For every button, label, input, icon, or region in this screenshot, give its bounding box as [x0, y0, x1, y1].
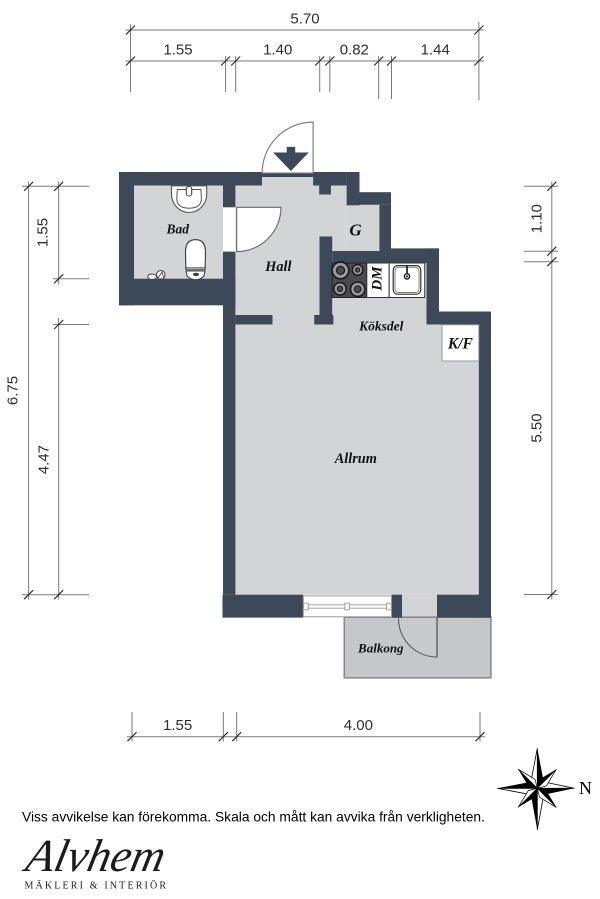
svg-text:5.70: 5.70 [290, 11, 319, 28]
svg-text:6.75: 6.75 [5, 376, 22, 405]
svg-text:Bad: Bad [166, 222, 190, 237]
svg-text:Alvhem: Alvhem [19, 831, 171, 881]
svg-text:4.47: 4.47 [36, 445, 53, 474]
svg-text:1.55: 1.55 [35, 218, 52, 247]
svg-text:1.10: 1.10 [529, 204, 546, 233]
svg-text:5.50: 5.50 [529, 413, 546, 442]
svg-text:1.55: 1.55 [163, 717, 192, 734]
svg-text:G: G [349, 221, 362, 240]
svg-text:1.44: 1.44 [421, 42, 450, 59]
svg-text:1.40: 1.40 [263, 42, 292, 59]
svg-text:4.00: 4.00 [344, 717, 373, 734]
svg-text:DM: DM [370, 266, 386, 292]
svg-text:K/F: K/F [447, 336, 474, 353]
svg-text:Balkong: Balkong [357, 641, 404, 656]
svg-text:Allrum: Allrum [334, 451, 377, 467]
svg-text:0.82: 0.82 [340, 42, 369, 59]
svg-text:N: N [579, 778, 592, 798]
svg-text:Hall: Hall [264, 259, 291, 275]
svg-text:MÄKLERI & INTERIÖR: MÄKLERI & INTERIÖR [25, 880, 169, 892]
svg-text:1.55: 1.55 [163, 42, 192, 59]
svg-text:Viss avvikelse kan förekomma.: Viss avvikelse kan förekomma. Skala och … [22, 810, 485, 825]
svg-text:Köksdel: Köksdel [358, 319, 404, 334]
